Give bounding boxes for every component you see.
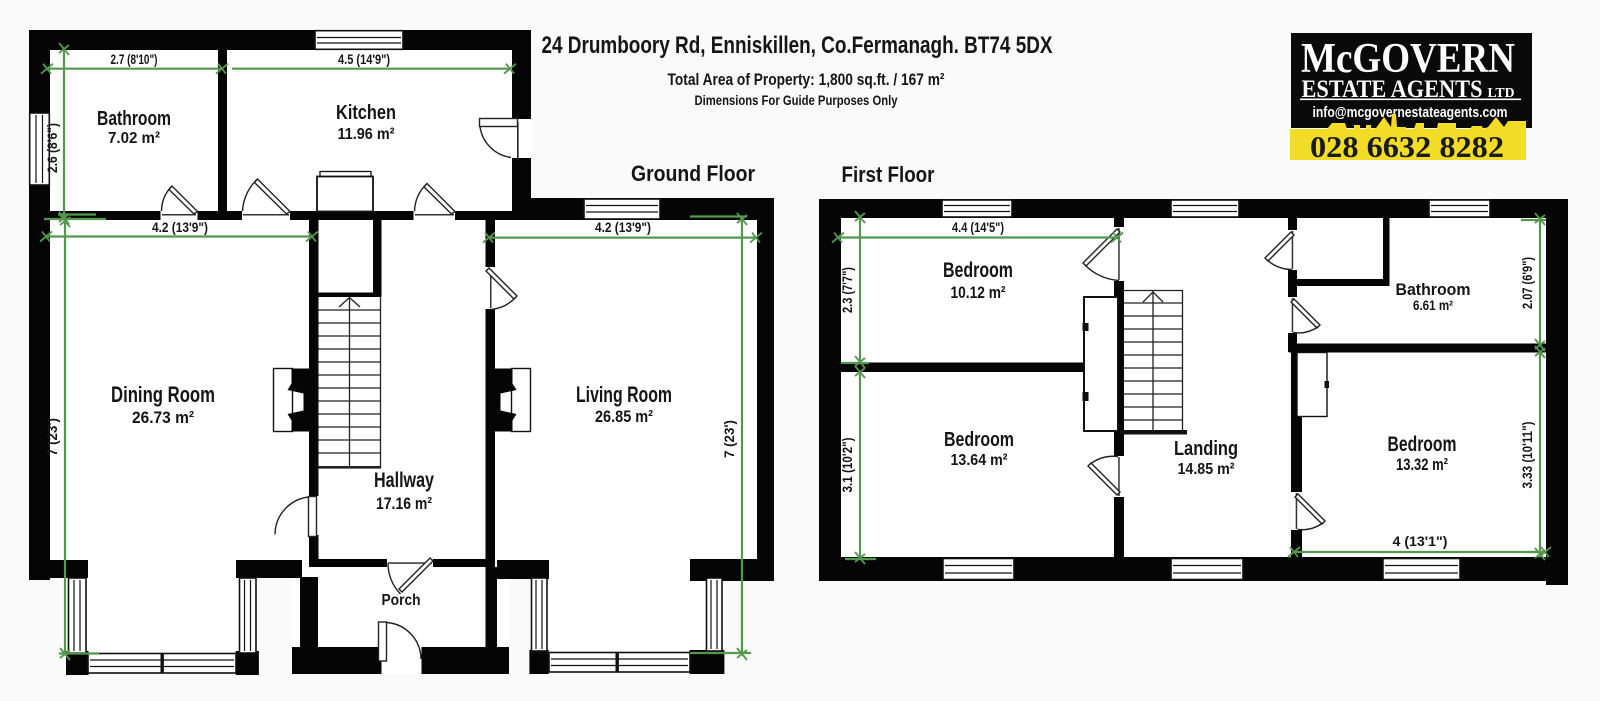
svg-text:4.2 (13'9"): 4.2 (13'9") — [595, 220, 651, 235]
svg-text:17.16 m²: 17.16 m² — [376, 494, 432, 513]
svg-text:10.12 m²: 10.12 m² — [951, 284, 1006, 302]
svg-text:4 (13'1"): 4 (13'1") — [1393, 534, 1448, 549]
svg-text:Bedroom: Bedroom — [1388, 433, 1457, 456]
svg-text:2.7 (8'10"): 2.7 (8'10") — [111, 52, 158, 67]
svg-text:2.6 (8'6"): 2.6 (8'6") — [45, 123, 60, 173]
svg-text:26.73 m²: 26.73 m² — [132, 408, 194, 427]
svg-text:Bedroom: Bedroom — [944, 429, 1014, 451]
svg-text:2.07 (6'9"): 2.07 (6'9") — [1520, 257, 1535, 309]
svg-text:3.1 (10'2"): 3.1 (10'2") — [840, 438, 855, 493]
svg-text:Kitchen: Kitchen — [336, 102, 396, 124]
svg-text:7 (23'): 7 (23') — [722, 420, 737, 458]
svg-text:7 (23'): 7 (23') — [45, 418, 60, 456]
svg-text:11.96 m²: 11.96 m² — [338, 126, 395, 143]
svg-text:Dining Room: Dining Room — [111, 382, 215, 407]
svg-text:6.61 m²: 6.61 m² — [1413, 297, 1453, 313]
svg-text:First Floor: First Floor — [842, 162, 935, 187]
svg-text:4.5 (14'9"): 4.5 (14'9") — [338, 52, 390, 67]
svg-text:Hallway: Hallway — [374, 469, 434, 492]
svg-text:26.85 m²: 26.85 m² — [595, 407, 653, 426]
svg-text:7.02 m²: 7.02 m² — [108, 130, 160, 147]
svg-text:Landing: Landing — [1174, 438, 1238, 460]
svg-text:14.85 m²: 14.85 m² — [1178, 461, 1235, 478]
svg-text:Ground Floor: Ground Floor — [631, 161, 755, 186]
svg-text:13.64 m²: 13.64 m² — [951, 452, 1008, 469]
svg-text:4.4 (14'5"): 4.4 (14'5") — [952, 220, 1004, 235]
svg-text:3.33 (10'11"): 3.33 (10'11") — [1520, 422, 1535, 489]
svg-text:Total Area of Property: 1,800: Total Area of Property: 1,800 sq.ft. / 1… — [668, 70, 945, 89]
svg-text:Bathroom: Bathroom — [97, 108, 171, 130]
svg-text:4.2 (13'9"): 4.2 (13'9") — [152, 220, 208, 235]
svg-text:028 6632 8282: 028 6632 8282 — [1310, 129, 1504, 164]
svg-text:info@mcgovernestateagents.com: info@mcgovernestateagents.com — [1313, 104, 1508, 121]
svg-text:Porch: Porch — [382, 592, 421, 609]
svg-text:2.3 (7'7"): 2.3 (7'7") — [840, 267, 855, 313]
svg-text:Living Room: Living Room — [576, 382, 672, 407]
svg-text:13.32 m²: 13.32 m² — [1396, 456, 1448, 474]
svg-text:24 Drumboory Rd, Enniskillen,: 24 Drumboory Rd, Enniskillen, Co.Fermana… — [542, 32, 1053, 59]
svg-text:Dimensions For Guide Purposes: Dimensions For Guide Purposes Only — [695, 93, 898, 108]
svg-text:Bedroom: Bedroom — [943, 259, 1013, 282]
